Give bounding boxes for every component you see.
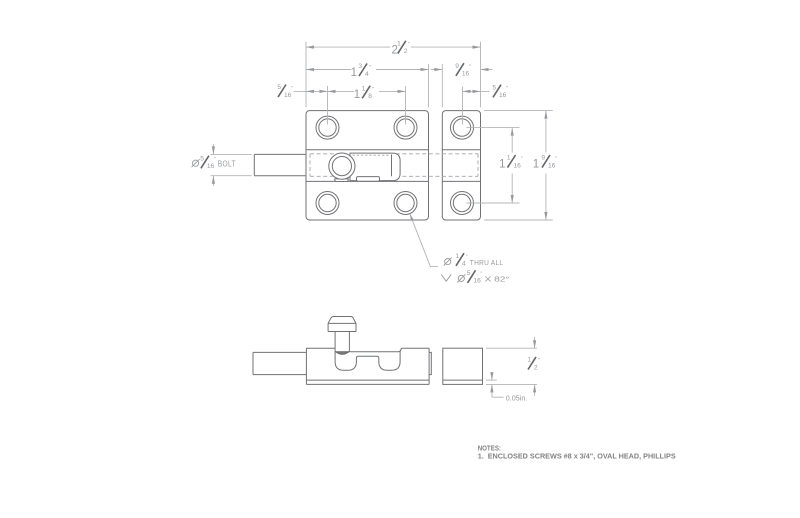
svg-text:1: 1 (533, 159, 539, 171)
svg-text:16: 16 (548, 162, 556, 169)
svg-text:": " (369, 65, 371, 71)
svg-text:16: 16 (514, 162, 522, 169)
svg-text:1: 1 (351, 67, 357, 79)
svg-text:1. ENCLOSED SCREWS #8 x 3/4",: 1. ENCLOSED SCREWS #8 x 3/4", OVAL HEAD,… (478, 451, 676, 460)
svg-text:16: 16 (284, 92, 292, 99)
svg-text:16: 16 (474, 278, 482, 285)
svg-text:1: 1 (354, 89, 360, 101)
svg-text:": " (214, 157, 216, 163)
svg-text:": " (469, 65, 471, 71)
svg-text:BOLT: BOLT (218, 160, 236, 169)
svg-text:": " (555, 156, 557, 162)
svg-text:16: 16 (499, 92, 507, 99)
svg-text:": " (372, 87, 374, 93)
svg-text:THRU ALL: THRU ALL (470, 258, 504, 267)
svg-text:": " (481, 272, 483, 278)
svg-text:16: 16 (462, 71, 470, 78)
svg-text:9: 9 (455, 63, 459, 70)
svg-text:1: 1 (455, 253, 459, 260)
svg-text:5: 5 (277, 84, 281, 91)
svg-text:9: 9 (541, 155, 545, 162)
svg-text:1: 1 (397, 41, 401, 48)
svg-text:X 82°: X 82° (485, 274, 510, 283)
svg-text:": " (538, 358, 540, 364)
svg-text:4: 4 (365, 71, 369, 78)
svg-text:1: 1 (499, 159, 505, 171)
svg-text:3: 3 (358, 63, 362, 70)
svg-text:8: 8 (368, 93, 372, 100)
svg-text:": " (521, 156, 523, 162)
svg-text:5: 5 (200, 155, 204, 162)
svg-text:2: 2 (404, 48, 408, 55)
svg-text:": " (506, 86, 508, 92)
svg-text:2: 2 (534, 364, 538, 371)
svg-text:1: 1 (507, 155, 511, 162)
svg-text:16: 16 (207, 163, 215, 170)
svg-text:5: 5 (492, 84, 496, 91)
svg-text:": " (291, 86, 293, 92)
svg-text:5: 5 (467, 270, 471, 277)
svg-text:1: 1 (362, 85, 366, 92)
svg-text:0.05in.: 0.05in. (506, 393, 528, 402)
svg-text:1: 1 (527, 357, 531, 364)
svg-text:4: 4 (462, 261, 466, 268)
svg-text:": " (408, 42, 410, 48)
svg-text:": " (466, 255, 468, 261)
